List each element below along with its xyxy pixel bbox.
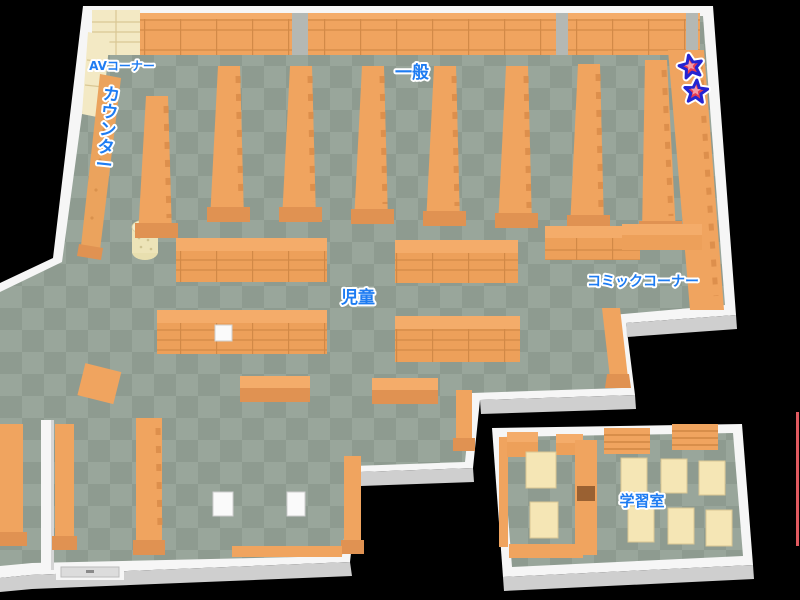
label-children: 児童 — [340, 287, 375, 308]
stool — [215, 325, 232, 341]
study-desk — [699, 461, 725, 495]
shelf-gap — [686, 13, 698, 55]
kids-table — [372, 378, 438, 404]
wall-bookshelf-band — [128, 13, 700, 55]
bookshelf-row — [341, 456, 364, 554]
bookshelf-row — [52, 424, 77, 550]
study-desk — [526, 452, 556, 488]
floor-plan-svg: AVコーナー 一般 カウンター 児童 コミックコーナー — [0, 0, 800, 600]
label-av-corner: AVコーナー — [89, 59, 155, 73]
study-room: 学習室 — [492, 424, 754, 591]
bookshelf-row — [453, 390, 475, 451]
red-edge-line — [796, 412, 799, 546]
library-map: AVコーナー 一般 カウンター 児童 コミックコーナー — [0, 0, 800, 600]
low-shelf — [395, 240, 518, 283]
label-study-room: 学習室 — [619, 492, 664, 510]
shelf-gap — [556, 13, 568, 55]
study-desk — [530, 502, 558, 538]
wall-bench — [509, 544, 583, 558]
low-shelf — [395, 316, 520, 362]
wall-bench — [232, 546, 342, 557]
label-comic-corner: コミックコーナー — [587, 274, 699, 290]
bookshelf-row — [0, 424, 27, 546]
shelf-gap — [292, 13, 308, 55]
magazine-rack — [672, 424, 718, 450]
low-shelf — [622, 224, 702, 250]
entrance-door[interactable] — [56, 564, 124, 580]
magazine-rack — [604, 428, 650, 454]
study-desk — [706, 510, 732, 546]
wall-shelf — [499, 437, 508, 547]
bookshelf-row — [133, 418, 165, 555]
low-shelf — [157, 310, 327, 354]
divider-doorway — [577, 486, 595, 501]
label-general: 一般 — [395, 62, 429, 83]
study-desk — [668, 508, 694, 544]
stool — [287, 492, 305, 516]
stool — [213, 492, 233, 516]
study-desk — [661, 459, 687, 493]
study-desk — [621, 458, 647, 492]
kids-table — [240, 376, 310, 402]
study-desk — [628, 506, 654, 542]
low-shelf — [176, 238, 327, 282]
